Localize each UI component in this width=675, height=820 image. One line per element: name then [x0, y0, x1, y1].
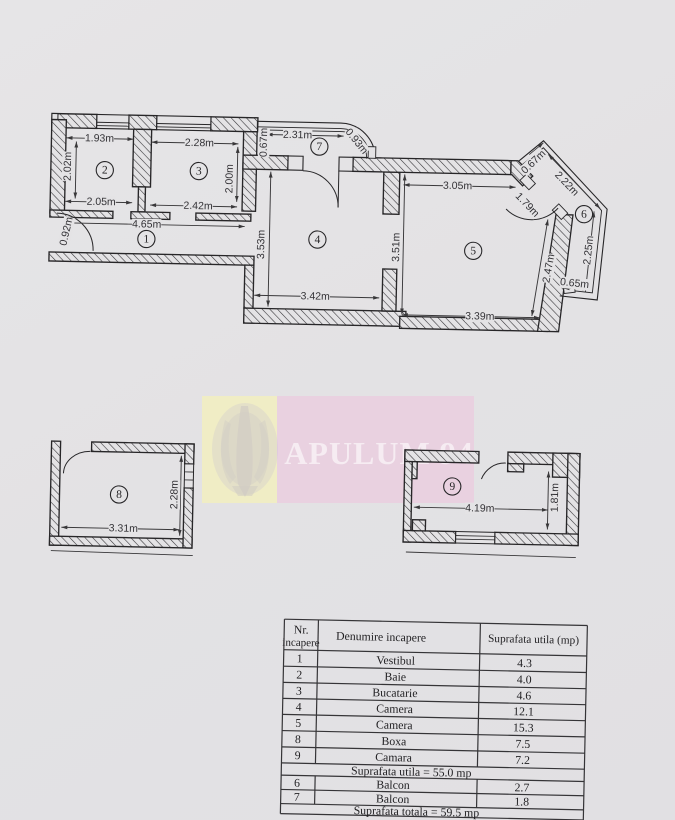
svg-text:3: 3 [196, 166, 202, 178]
svg-text:Baie: Baie [384, 669, 406, 683]
svg-text:4: 4 [296, 700, 302, 714]
svg-text:3.42m: 3.42m [300, 290, 330, 303]
svg-text:6: 6 [581, 209, 587, 221]
svg-text:7: 7 [316, 141, 322, 153]
svg-text:Camera: Camera [376, 717, 414, 732]
svg-text:7.5: 7.5 [515, 737, 530, 751]
svg-text:Suprafata utila = 55.0 mp: Suprafata utila = 55.0 mp [351, 763, 472, 780]
svg-text:1: 1 [297, 651, 303, 665]
svg-text:7.2: 7.2 [515, 753, 530, 767]
svg-text:Vestibul: Vestibul [376, 653, 416, 668]
svg-text:4.6: 4.6 [516, 688, 531, 702]
svg-text:2.42m: 2.42m [183, 200, 213, 213]
svg-text:2.02m: 2.02m [62, 151, 75, 181]
svg-text:3.53m: 3.53m [255, 229, 268, 259]
svg-text:1: 1 [143, 233, 149, 245]
svg-text:3.05m: 3.05m [443, 180, 473, 193]
svg-text:4.0: 4.0 [517, 672, 532, 686]
svg-text:2.05m: 2.05m [86, 196, 116, 209]
svg-text:9: 9 [295, 748, 301, 762]
svg-text:3.31m: 3.31m [109, 522, 139, 535]
svg-text:2.7: 2.7 [514, 780, 529, 794]
svg-text:Denumire incapere: Denumire incapere [336, 629, 426, 645]
svg-text:2.31m: 2.31m [283, 129, 313, 142]
svg-text:Bucatarie: Bucatarie [372, 685, 417, 700]
svg-text:Camara: Camara [375, 750, 413, 765]
svg-text:4: 4 [314, 234, 320, 246]
svg-text:1.93m: 1.93m [85, 132, 115, 145]
svg-text:0.92m: 0.92m [57, 216, 75, 247]
svg-text:2: 2 [296, 668, 302, 682]
svg-text:1.81m: 1.81m [549, 483, 562, 513]
svg-text:Balcon: Balcon [376, 777, 410, 792]
svg-text:incapere: incapere [282, 637, 320, 650]
svg-text:4.3: 4.3 [517, 656, 532, 670]
svg-text:7: 7 [294, 790, 300, 804]
svg-text:2.25m: 2.25m [581, 235, 596, 266]
svg-text:4.65m: 4.65m [132, 218, 162, 231]
svg-text:15.3: 15.3 [513, 720, 534, 734]
svg-text:4.19m: 4.19m [465, 502, 495, 515]
svg-text:5: 5 [470, 245, 476, 257]
svg-text:Boxa: Boxa [381, 734, 407, 749]
svg-text:9: 9 [449, 481, 455, 493]
svg-text:8: 8 [116, 489, 122, 501]
svg-text:5: 5 [295, 716, 301, 730]
svg-text:Suprafata utila (mp): Suprafata utila (mp) [488, 633, 579, 647]
svg-text:3.39m: 3.39m [465, 310, 495, 323]
svg-text:2.28m: 2.28m [185, 137, 215, 150]
svg-text:0.93m: 0.93m [343, 126, 371, 156]
svg-text:3: 3 [296, 684, 302, 698]
svg-text:2: 2 [102, 165, 108, 177]
svg-text:12.1: 12.1 [513, 704, 534, 718]
svg-text:Suprafata totala = 59.5 mp: Suprafata totala = 59.5 mp [354, 803, 480, 820]
svg-text:0.67m: 0.67m [258, 127, 271, 157]
svg-text:2.00m: 2.00m [223, 164, 236, 194]
svg-text:1.8: 1.8 [514, 794, 529, 808]
svg-text:Nr.: Nr. [294, 622, 309, 636]
svg-text:6: 6 [294, 776, 300, 790]
svg-text:3.51m: 3.51m [390, 232, 403, 262]
svg-text:2.28m: 2.28m [168, 480, 181, 510]
svg-text:8: 8 [295, 732, 301, 746]
svg-text:Camera: Camera [376, 701, 414, 716]
